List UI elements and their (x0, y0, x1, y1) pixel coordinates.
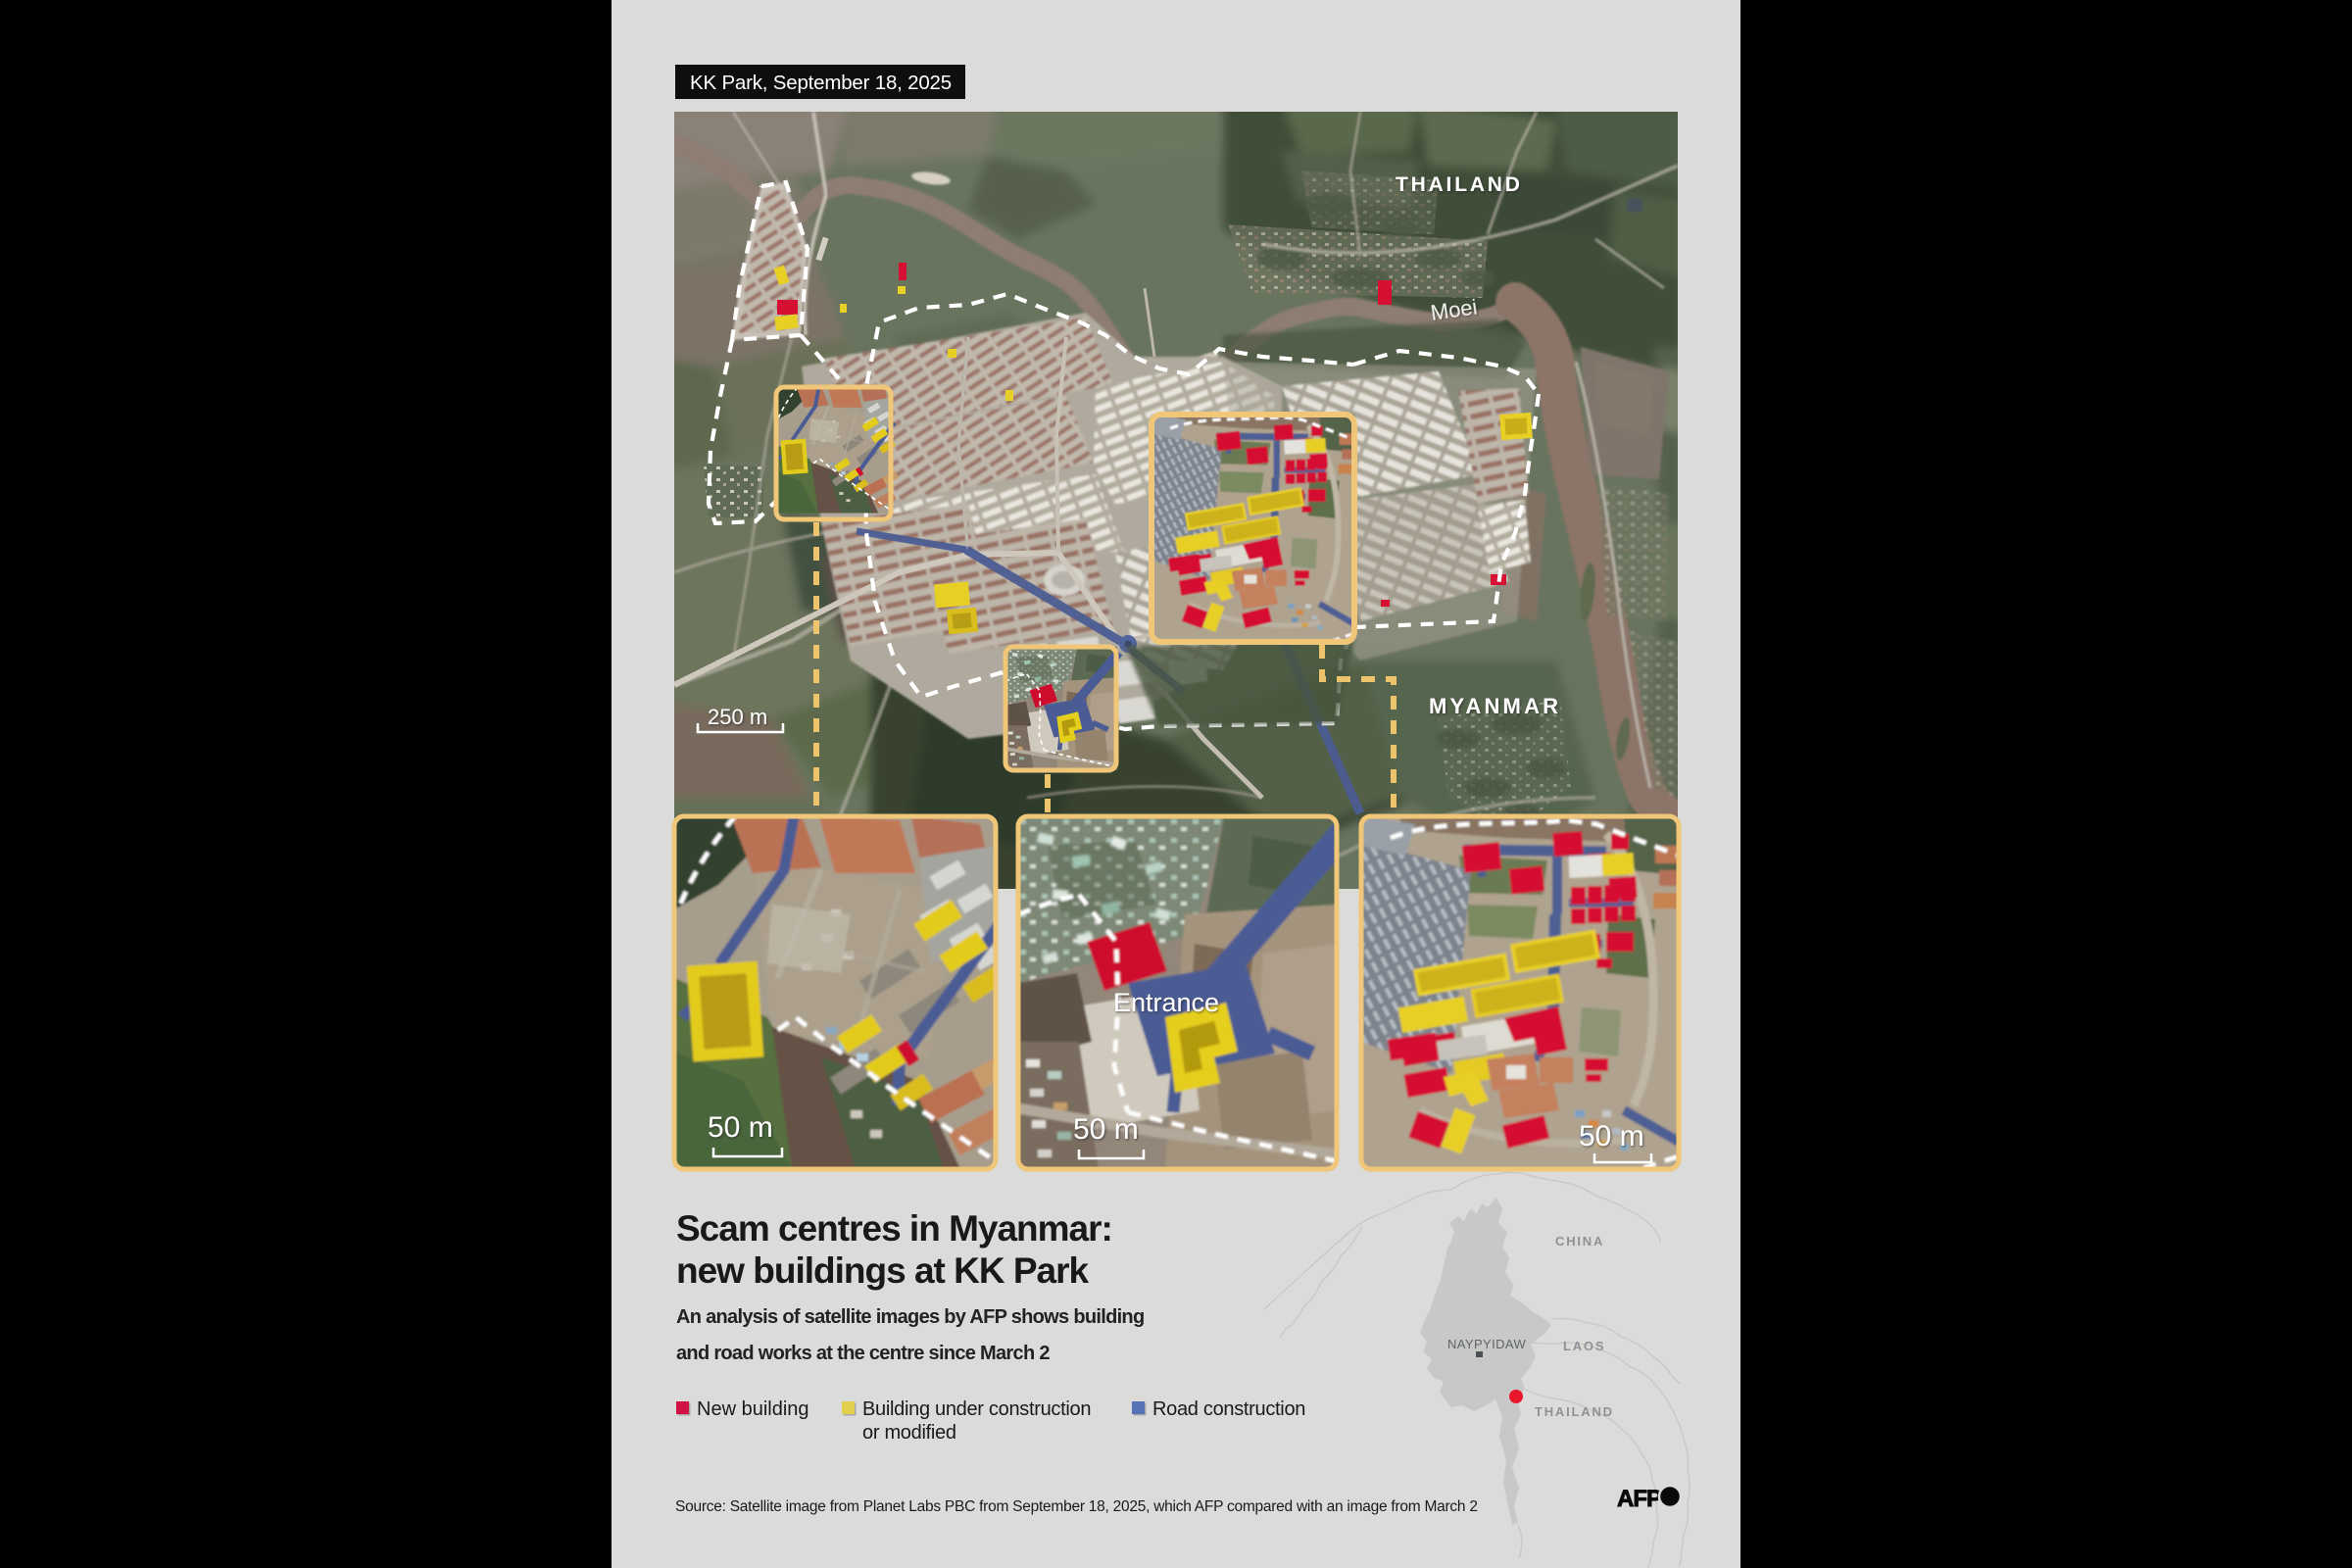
svg-text:CHINA: CHINA (1555, 1234, 1604, 1249)
svg-text:new buildings at KK Park: new buildings at KK Park (676, 1250, 1089, 1291)
svg-text:250 m: 250 m (708, 705, 767, 729)
svg-text:NAYPYIDAW: NAYPYIDAW (1447, 1337, 1526, 1351)
svg-text:New building: New building (697, 1398, 809, 1420)
svg-text:Entrance: Entrance (1113, 988, 1219, 1017)
svg-text:An analysis of satellite image: An analysis of satellite images by AFP s… (676, 1306, 1144, 1328)
svg-text:50 m: 50 m (1579, 1120, 1644, 1152)
svg-text:LAOS: LAOS (1563, 1339, 1605, 1353)
svg-text:THAILAND: THAILAND (1396, 173, 1523, 196)
svg-text:50 m: 50 m (708, 1111, 773, 1144)
svg-text:THAILAND: THAILAND (1535, 1404, 1614, 1419)
svg-text:or modified: or modified (862, 1422, 956, 1444)
svg-text:50 m: 50 m (1073, 1113, 1139, 1146)
svg-text:and road works at the centre s: and road works at the centre since March… (676, 1343, 1050, 1364)
svg-text:Scam centres in Myanmar:: Scam centres in Myanmar: (676, 1208, 1112, 1249)
svg-text:Building under construction: Building under construction (862, 1398, 1091, 1420)
svg-text:Source: Satellite image from P: Source: Satellite image from Planet Labs… (675, 1498, 1478, 1515)
svg-text:Road construction: Road construction (1152, 1398, 1305, 1420)
svg-text:KK Park, September 18, 2025: KK Park, September 18, 2025 (690, 72, 952, 94)
svg-text:MYANMAR: MYANMAR (1429, 694, 1561, 718)
svg-text:AFP: AFP (1617, 1486, 1662, 1512)
